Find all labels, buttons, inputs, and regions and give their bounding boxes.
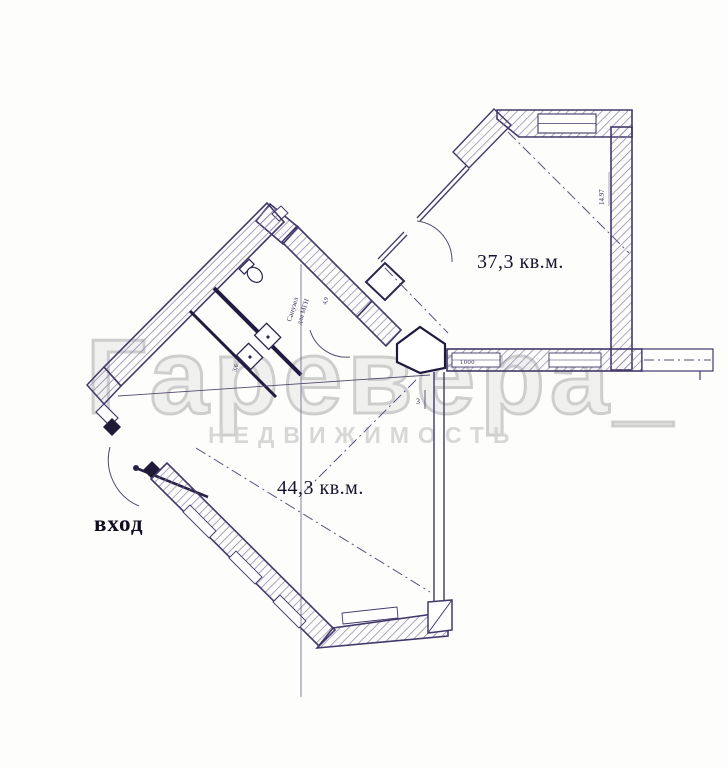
- window-width-dim: 1000: [460, 359, 475, 366]
- pier-column: [397, 327, 445, 373]
- bathroom-block: [104, 203, 401, 397]
- bathroom-area-dim: 4,9: [322, 297, 330, 306]
- room2-area-label: 44,3 кв.м.: [277, 477, 364, 499]
- room1-area-label: 37,3 кв.м.: [477, 251, 564, 273]
- partition-2: [190, 311, 276, 397]
- wall-right: [611, 127, 632, 370]
- wall-mark: 3: [416, 397, 420, 406]
- room-upper-walls: [366, 109, 713, 380]
- entrance-door-arc: [108, 447, 139, 506]
- sink-fixture-1: [255, 323, 281, 349]
- door-arc-hall: [310, 330, 350, 357]
- axis-diagonal-1: [196, 448, 430, 592]
- sink-fixture-2: [237, 343, 263, 369]
- wall-diagonal-thin: [378, 166, 469, 262]
- wall-corner-band: [453, 109, 511, 168]
- hall-dim: 3,6: [232, 364, 240, 373]
- entrance-label: вход: [94, 511, 144, 536]
- floor-plan-page: Гаревера_ НЕДВИЖИМОСТЬ: [0, 0, 727, 768]
- door-arc-upper-room: [417, 221, 452, 262]
- floor-plan-drawing: 37,3 кв.м. 44,3 кв.м. вход Санузел для М…: [0, 0, 727, 768]
- right-wall-dim: 14.97: [598, 189, 606, 205]
